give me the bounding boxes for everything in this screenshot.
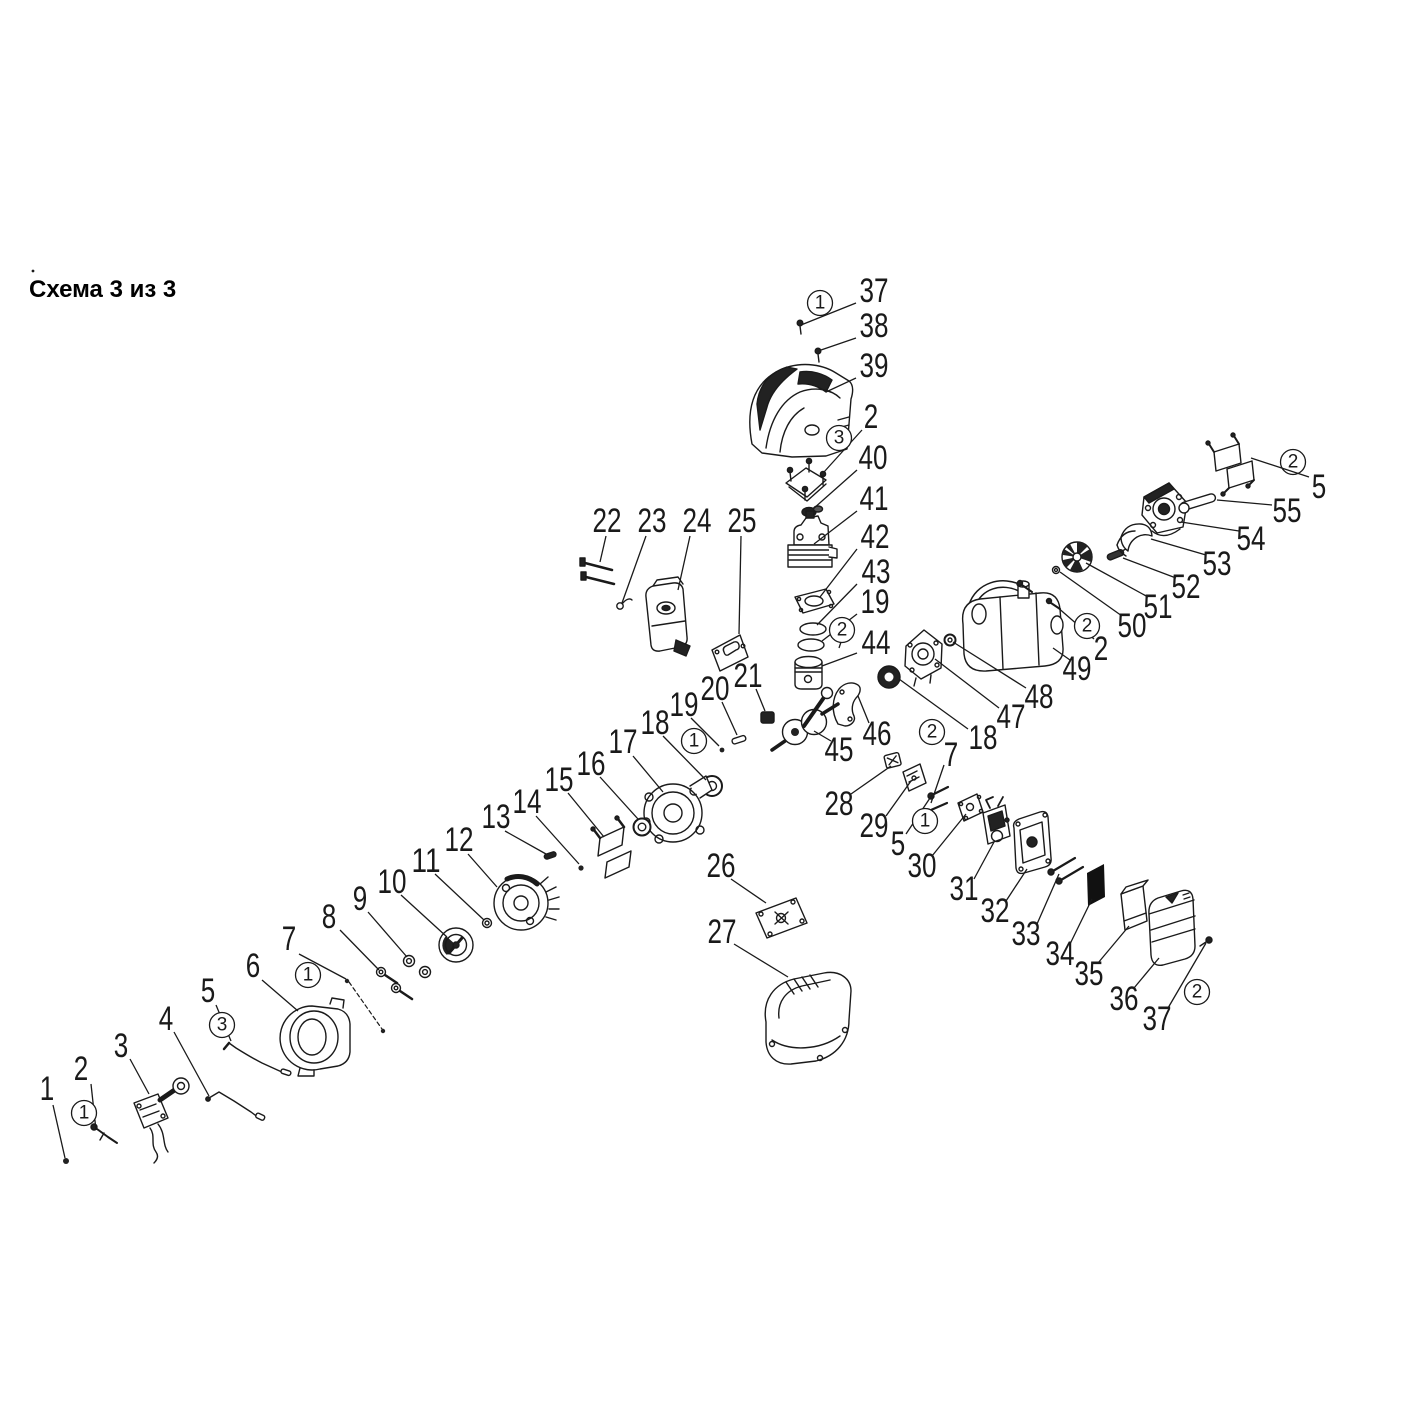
part-label-54: 54 <box>1237 520 1266 558</box>
leader-line-25 <box>739 536 741 634</box>
part-label-38: 38 <box>860 307 889 345</box>
leader-line-7 <box>931 765 944 803</box>
part-label-52: 52 <box>1172 568 1201 606</box>
part-label-37: 37 <box>1143 1000 1172 1038</box>
assembly-screw-7-dashed-drawing <box>345 979 385 1033</box>
part-label-53: 53 <box>1203 545 1232 583</box>
leader-line-17 <box>633 756 663 792</box>
part-label-47: 47 <box>997 698 1026 736</box>
part-label-39: 39 <box>860 347 889 385</box>
leader-line-53 <box>1151 539 1206 555</box>
qty-badge-2: 2 <box>1192 982 1203 1003</box>
qty-badge-2: 2 <box>1082 616 1093 637</box>
part-label-19: 19 <box>670 686 699 724</box>
part-label-32: 32 <box>981 892 1010 930</box>
part-label-44: 44 <box>862 624 891 662</box>
leader-line-55 <box>1217 500 1272 505</box>
part-label-51: 51 <box>1144 588 1173 626</box>
exploded-diagram-canvas: 3713839234041424319244222324252120191811… <box>0 0 1425 1425</box>
part-label-35: 35 <box>1075 955 1104 993</box>
airbox-base-32-drawing <box>1014 812 1052 874</box>
pin-19-mid-drawing <box>720 748 725 753</box>
part-label-7: 7 <box>282 920 297 958</box>
oil-seal-16-drawing <box>634 819 651 836</box>
part-label-34: 34 <box>1046 935 1075 973</box>
qty-badge-3: 3 <box>834 428 845 449</box>
part-label-4: 4 <box>159 1000 174 1038</box>
screw-37-top-drawing <box>797 320 803 334</box>
bottom-cover-27-drawing <box>765 972 851 1064</box>
part-label-12: 12 <box>445 821 474 859</box>
leader-line-8 <box>340 930 379 970</box>
part-label-55: 55 <box>1273 492 1302 530</box>
part-label-50: 50 <box>1118 607 1147 645</box>
clutch-spider-50-drawing <box>1062 542 1092 572</box>
part-label-2: 2 <box>864 398 879 436</box>
muffler-bolts-22-drawing <box>580 558 614 584</box>
starter-pulley-10-drawing <box>439 928 473 962</box>
part-label-49: 49 <box>1063 650 1092 688</box>
part-label-7: 7 <box>944 736 959 774</box>
part-label-29: 29 <box>860 807 889 845</box>
part-label-14: 14 <box>513 783 542 821</box>
screw-1-drawing <box>63 1158 69 1164</box>
part-label-5: 5 <box>201 972 216 1010</box>
part-label-23: 23 <box>638 502 667 540</box>
part-label-16: 16 <box>577 745 606 783</box>
bracket-15-drawing <box>591 816 631 878</box>
part-label-11: 11 <box>412 842 441 880</box>
ignition-coil-3-drawing <box>134 1078 189 1163</box>
leader-line-24 <box>678 536 690 590</box>
leader-line-26 <box>731 879 766 903</box>
leader-line-54 <box>1181 522 1239 531</box>
leader-line-44 <box>822 653 857 666</box>
nut-51-drawing <box>1053 567 1060 574</box>
part-label-5: 5 <box>891 825 906 863</box>
leader-line-13 <box>505 831 546 854</box>
qty-badge-2: 2 <box>927 722 938 743</box>
part-label-27: 27 <box>708 913 737 951</box>
part-label-13: 13 <box>482 798 511 836</box>
plate-26-drawing <box>756 898 807 938</box>
wire-2-left-drawing <box>91 1124 117 1143</box>
qty-badge-2: 2 <box>837 620 848 641</box>
exploded-parts-diagram-page: Схема 3 из 3 <box>0 0 1425 1425</box>
qty-badge-1: 1 <box>815 293 826 314</box>
leader-line-50 <box>1060 572 1122 616</box>
bolts-8-drawing <box>377 968 413 1000</box>
leader-line-6 <box>262 980 298 1011</box>
leader-line-1 <box>53 1105 65 1158</box>
leader-line-11 <box>435 874 484 920</box>
woodruff-key-20-drawing <box>731 735 746 745</box>
part-label-18: 18 <box>969 719 998 757</box>
piston-44-drawing <box>795 657 822 690</box>
part-label-45: 45 <box>825 731 854 769</box>
qty-badge-1: 1 <box>303 965 314 986</box>
part-label-33: 33 <box>1012 915 1041 953</box>
part-label-30: 30 <box>908 847 937 885</box>
title-dot <box>32 270 35 273</box>
air-filter-cover-36-drawing <box>1149 890 1195 965</box>
leader-line-29 <box>886 781 911 816</box>
muffler-24-drawing <box>646 577 690 656</box>
part-label-3: 3 <box>114 1027 129 1065</box>
part-label-36: 36 <box>1110 980 1139 1018</box>
part-label-37: 37 <box>860 272 889 310</box>
bracket-5-right-drawing <box>1206 433 1254 496</box>
crankcase-half-47-drawing <box>905 630 942 686</box>
leader-line-28 <box>851 766 891 794</box>
qty-badge-1: 1 <box>920 811 931 832</box>
qty-badge-1: 1 <box>79 1103 90 1124</box>
flywheel-12-drawing <box>494 876 559 930</box>
part-label-31: 31 <box>950 870 979 908</box>
leader-line-38 <box>821 338 856 350</box>
part-label-25: 25 <box>728 502 757 540</box>
part-label-10: 10 <box>378 863 407 901</box>
part-label-22: 22 <box>593 502 622 540</box>
crankcase-half-17-drawing <box>642 776 712 843</box>
part-label-6: 6 <box>246 947 261 985</box>
part-label-2: 2 <box>1094 630 1109 668</box>
cap-21-drawing <box>761 712 774 723</box>
screw-38-drawing <box>815 348 821 362</box>
qty-badge-1: 1 <box>689 731 700 752</box>
cylinder-41-drawing <box>788 511 837 567</box>
part-label-41: 41 <box>860 480 889 518</box>
part-label-15: 15 <box>545 761 574 799</box>
part-label-40: 40 <box>859 439 888 477</box>
part-label-20: 20 <box>701 670 730 708</box>
leader-line-9 <box>368 912 407 957</box>
part-label-5: 5 <box>1312 468 1327 506</box>
leader-line-3 <box>130 1059 149 1094</box>
leader-line-23 <box>622 536 646 603</box>
part-label-24: 24 <box>683 502 712 540</box>
washers-9-drawing <box>404 956 431 978</box>
bearing-48-drawing <box>945 635 956 646</box>
part-label-18: 18 <box>641 704 670 742</box>
part-label-1: 1 <box>40 1070 55 1108</box>
carb-gasket-30-drawing <box>958 794 983 821</box>
piston-rings-43-19-drawing <box>798 623 826 651</box>
leader-line-27 <box>734 944 788 977</box>
bolts-33-drawing <box>1048 858 1083 884</box>
part-label-28: 28 <box>825 785 854 823</box>
leader-line-10 <box>401 895 447 937</box>
carburetor-31-drawing <box>983 797 1010 844</box>
qty-badge-3: 3 <box>217 1015 228 1036</box>
part-label-48: 48 <box>1025 678 1054 716</box>
leader-line-14 <box>536 816 579 864</box>
leader-line-15 <box>568 793 604 837</box>
part-label-19: 19 <box>861 583 890 621</box>
bearing-18-right-drawing <box>878 666 900 688</box>
filter-element-35-drawing <box>1121 880 1148 930</box>
fan-cover-6-drawing <box>280 998 350 1076</box>
qty-badge-2: 2 <box>1288 452 1299 473</box>
cylinder-gasket-42-drawing <box>795 589 834 613</box>
screw-13-drawing <box>544 851 557 859</box>
callouts-layer: 3713839234041424319244222324252120191811… <box>40 272 1327 1158</box>
part-label-17: 17 <box>609 723 638 761</box>
screw-14-drawing <box>578 865 583 870</box>
insulator-28-drawing <box>884 752 902 768</box>
part-label-46: 46 <box>863 715 892 753</box>
part-label-8: 8 <box>322 898 337 936</box>
leader-line-51 <box>1086 563 1148 597</box>
screw-37-right-drawing <box>1200 937 1212 946</box>
shaft-55-drawing <box>1179 493 1216 513</box>
part-label-9: 9 <box>353 880 368 918</box>
filter-element-34-drawing <box>1087 864 1105 906</box>
part-label-26: 26 <box>707 847 736 885</box>
clamp-23-drawing <box>617 599 632 609</box>
throttle-wire-4-drawing <box>206 1092 266 1121</box>
leader-line-16 <box>600 777 638 819</box>
part-label-2: 2 <box>74 1050 89 1088</box>
engine-mount-plate-drawing <box>786 458 826 501</box>
part-label-21: 21 <box>734 657 763 695</box>
leader-line-52 <box>1123 558 1176 578</box>
part-label-42: 42 <box>861 518 890 556</box>
